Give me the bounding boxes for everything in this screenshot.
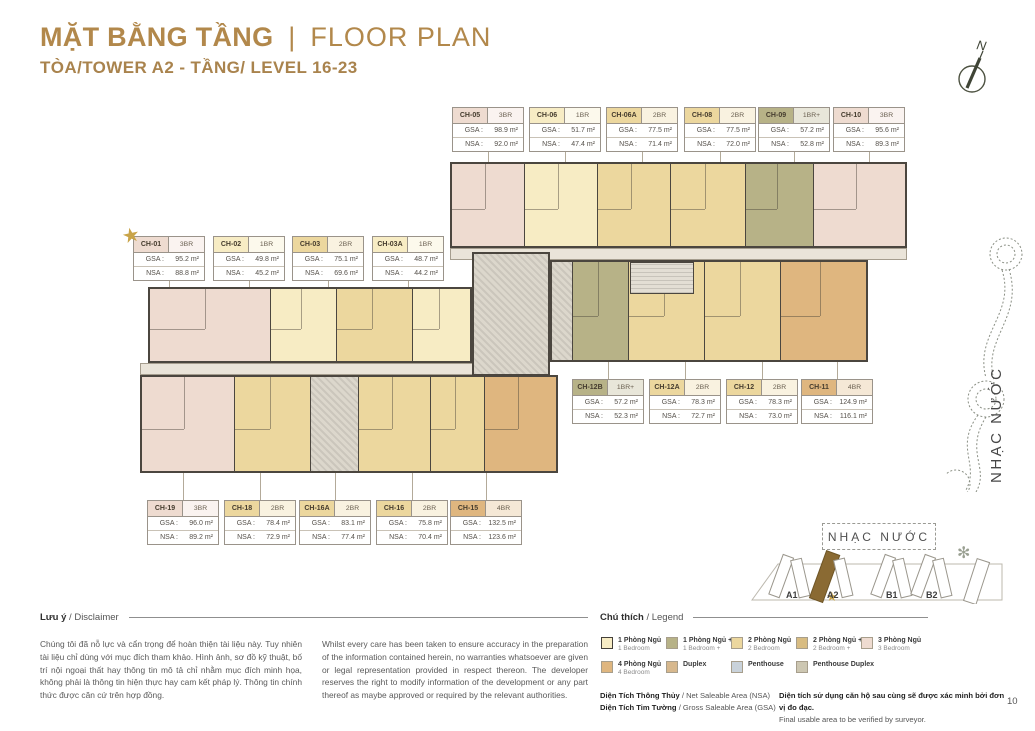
gsa-value: 57.2 m² (603, 399, 643, 406)
unit-nsa-row: NSA : 73.0 m² (727, 409, 797, 423)
unit-table-header: CH-03A 1BR (373, 237, 443, 253)
nsa-label: NSA : (225, 534, 255, 541)
unit-id: CH-06A (607, 108, 642, 123)
unit-nsa-row: NSA : 44.2 m² (373, 266, 443, 280)
unit-table-ch-09: CH-09 1BR+ GSA : 57.2 m² NSA : 52.8 m² (758, 107, 830, 152)
unit-type: 2BR (642, 108, 677, 123)
gsa-value: 48.7 m² (403, 256, 443, 263)
legend-swatch (731, 637, 743, 649)
page-title-vi: MẶT BẰNG TẦNG (40, 22, 273, 52)
unit-gsa-row: GSA : 77.5 m² (685, 124, 755, 137)
unit-id: CH-12A (650, 380, 685, 395)
legend-item-5: 3 Phòng Ngủ 3 Bedroom (861, 636, 921, 654)
legend-label-vi: 2 Phòng Ngủ + (813, 636, 862, 645)
unit-type: 2BR (328, 237, 363, 252)
nsa-value: 89.3 m² (864, 141, 904, 148)
gsa-value: 96.0 m² (178, 520, 218, 527)
legend-item-6: 4 Phòng Ngủ 4 Bedroom (601, 660, 666, 678)
brochure-page: MẶT BẰNG TẦNG | FLOOR PLAN TÒA/TOWER A2 … (0, 0, 1035, 731)
unit-id: CH-05 (453, 108, 488, 123)
unit-gsa-row: GSA : 98.9 m² (453, 124, 523, 137)
unit-id: CH-12B (573, 380, 608, 395)
unit-gsa-row: GSA : 132.5 m² (451, 517, 521, 530)
nsa-label: NSA : (607, 141, 637, 148)
legend-item-4: 2 Phòng Ngủ + 2 Bedroom + (796, 636, 861, 654)
nsa-value: 47.4 m² (560, 141, 600, 148)
unit-table-ch-06: CH-06 1BR GSA : 51.7 m² NSA : 47.4 m² (529, 107, 601, 152)
unit-table-ch-06a: CH-06A 2BR GSA : 77.5 m² NSA : 71.4 m² (606, 107, 678, 152)
unit-gsa-row: GSA : 95.2 m² (134, 253, 204, 266)
unit-block-ch-18 (234, 377, 310, 471)
heading-rule (693, 617, 928, 618)
nsa-value: 116.1 m² (832, 413, 872, 420)
page-title: MẶT BẰNG TẦNG | FLOOR PLAN (40, 22, 491, 53)
nsa-label: NSA : (685, 141, 715, 148)
stair-core-left (310, 377, 358, 471)
legend-item-1: 1 Phòng Ngủ 1 Bedroom (601, 636, 666, 654)
nsa-label: NSA : (300, 534, 330, 541)
leader-line (412, 473, 413, 500)
lobby-core (552, 262, 572, 360)
unit-table-header: CH-12 2BR (727, 380, 797, 396)
unit-block-ch-09 (745, 164, 813, 246)
legend-row-2: 4 Phòng Ngủ 4 Bedroom Duplex Penthouse P… (601, 660, 874, 678)
gsa-value: 77.5 m² (637, 127, 677, 134)
unit-block-ch-03 (336, 289, 412, 361)
unit-type: 4BR (837, 380, 872, 395)
unit-gsa-row: GSA : 75.1 m² (293, 253, 363, 266)
unit-table-header: CH-09 1BR+ (759, 108, 829, 124)
legend-item-9: Penthouse Duplex (796, 660, 874, 678)
legend-label-en: 1 Bedroom + (683, 645, 732, 653)
unit-type: 3BR (169, 237, 204, 252)
legend-label-vi: Duplex (683, 660, 706, 669)
unit-type: 2BR (412, 501, 447, 516)
unit-table-header: CH-03 2BR (293, 237, 363, 253)
unit-type: 1BR+ (794, 108, 829, 123)
compass-icon: N (945, 36, 1005, 102)
unit-type: 2BR (260, 501, 295, 516)
legend-swatch (731, 661, 743, 673)
tower-footprint-extra (964, 559, 990, 604)
unit-block-ch-06 (524, 164, 597, 246)
featured-star-icon: ★ (120, 224, 142, 247)
unit-id: CH-03 (293, 237, 328, 252)
gsa-label: GSA : (293, 256, 323, 263)
gsa-label: GSA : (225, 520, 255, 527)
legend-labels: 4 Phòng Ngủ 4 Bedroom (618, 660, 661, 678)
legend-labels: 1 Phòng Ngủ + 1 Bedroom + (683, 636, 732, 654)
legend-label-en: 2 Bedroom + (813, 645, 862, 653)
unit-table-ch-16: CH-16 2BR GSA : 75.8 m² NSA : 70.4 m² (376, 500, 448, 545)
gsa-label: GSA : (377, 520, 407, 527)
unit-id: CH-02 (214, 237, 249, 252)
unit-nsa-row: NSA : 92.0 m² (453, 137, 523, 151)
gsa-label: GSA : (685, 127, 715, 134)
legend-item-2: 1 Phòng Ngủ + 1 Bedroom + (666, 636, 731, 654)
unit-id: CH-11 (802, 380, 837, 395)
unit-block-ch-06a (597, 164, 670, 246)
unit-type: 3BR (869, 108, 904, 123)
unit-block-ch-16a (358, 377, 430, 471)
unit-nsa-row: NSA : 45.2 m² (214, 266, 284, 280)
unit-block-ch-10 (813, 164, 905, 246)
leader-line (335, 473, 336, 500)
nsa-value: 71.4 m² (637, 141, 677, 148)
gsa-value: 77.5 m² (715, 127, 755, 134)
legend-label-vi: 2 Phòng Ngủ (748, 636, 791, 645)
gsa-label: GSA : (834, 127, 864, 134)
unit-type: 1BR (565, 108, 600, 123)
unit-gsa-row: GSA : 48.7 m² (373, 253, 443, 266)
legend-swatch (601, 661, 613, 673)
wing-top (450, 162, 907, 248)
unit-block-ch-15 (484, 377, 556, 471)
unit-block-ch-16 (430, 377, 484, 471)
legend-item-8: Penthouse (731, 660, 796, 678)
unit-table-ch-05: CH-05 3BR GSA : 98.9 m² NSA : 92.0 m² (452, 107, 524, 152)
nsa-value: 69.6 m² (323, 270, 363, 277)
unit-table-ch-18: CH-18 2BR GSA : 78.4 m² NSA : 72.9 m² (224, 500, 296, 545)
unit-table-header: CH-11 4BR (802, 380, 872, 396)
page-title-en: FLOOR PLAN (310, 22, 491, 52)
unit-block-ch-05 (452, 164, 524, 246)
unit-block-ch-03a (412, 289, 470, 361)
legend-heading-en: / Legend (644, 612, 684, 623)
unit-id: CH-06 (530, 108, 565, 123)
unit-table-ch-12b: CH-12B 1BR+ GSA : 57.2 m² NSA : 52.3 m² (572, 379, 644, 424)
nsa-value: 77.4 m² (330, 534, 370, 541)
stair-core-right (630, 262, 694, 294)
unit-nsa-row: NSA : 123.6 m² (451, 530, 521, 544)
gsa-value: 49.8 m² (244, 256, 284, 263)
unit-id: CH-10 (834, 108, 869, 123)
nsa-label: NSA : (293, 270, 323, 277)
legend-label-en: 1 Bedroom (618, 645, 661, 653)
leader-line (486, 473, 487, 500)
tower-label-b2: B2 (926, 590, 938, 600)
legend-label-vi: 3 Phòng Ngủ (878, 636, 921, 645)
gsa-value: 95.6 m² (864, 127, 904, 134)
legend-swatch (861, 637, 873, 649)
unit-table-ch-12: CH-12 2BR GSA : 78.3 m² NSA : 73.0 m² (726, 379, 798, 424)
gsa-value: 75.1 m² (323, 256, 363, 263)
unit-table-ch-03: CH-03 2BR GSA : 75.1 m² NSA : 69.6 m² (292, 236, 364, 281)
unit-nsa-row: NSA : 88.8 m² (134, 266, 204, 280)
page-number: 10 (1007, 696, 1018, 707)
legend-heading-vi: Chú thích (600, 612, 644, 623)
unit-table-ch-10: CH-10 3BR GSA : 95.6 m² NSA : 89.3 m² (833, 107, 905, 152)
legend-label-vi: Penthouse (748, 660, 784, 669)
surveyor-note-en: Final usable area to be verified by surv… (779, 715, 926, 724)
unit-gsa-row: GSA : 77.5 m² (607, 124, 677, 137)
wing-right (550, 260, 868, 362)
legend-labels: Penthouse (748, 660, 784, 669)
unit-nsa-row: NSA : 116.1 m² (802, 409, 872, 423)
unit-gsa-row: GSA : 57.2 m² (573, 396, 643, 409)
leader-line (685, 362, 686, 379)
surveyor-note: Diện tích sử dụng căn hộ sau cùng sẽ đượ… (779, 690, 1009, 725)
unit-table-header: CH-06A 2BR (607, 108, 677, 124)
elevator-core (472, 252, 550, 376)
unit-table-header: CH-05 3BR (453, 108, 523, 124)
unit-gsa-row: GSA : 51.7 m² (530, 124, 600, 137)
legend-label-vi: 1 Phòng Ngủ + (683, 636, 732, 645)
unit-type: 1BR (408, 237, 443, 252)
gsa-value: 78.3 m² (680, 399, 720, 406)
nsa-value: 92.0 m² (483, 141, 523, 148)
unit-type: 4BR (486, 501, 521, 516)
legend-label-vi: Penthouse Duplex (813, 660, 874, 669)
unit-table-ch-12a: CH-12A 2BR GSA : 78.3 m² NSA : 72.7 m² (649, 379, 721, 424)
unit-type: 3BR (488, 108, 523, 123)
legend-label-en: 3 Bedroom (878, 645, 921, 653)
unit-block-ch-19 (142, 377, 234, 471)
unit-table-header: CH-02 1BR (214, 237, 284, 253)
leader-line (837, 362, 838, 379)
gsa-label: GSA : (727, 399, 757, 406)
nsa-value: 44.2 m² (403, 270, 443, 277)
unit-id: CH-03A (373, 237, 408, 252)
gsa-value: 57.2 m² (789, 127, 829, 134)
gsa-value: 51.7 m² (560, 127, 600, 134)
leader-line (608, 362, 609, 379)
nsa-value: 72.0 m² (715, 141, 755, 148)
disclaimer-heading: Lưu ý / Disclaimer (40, 612, 588, 623)
unit-nsa-row: NSA : 72.0 m² (685, 137, 755, 151)
nsa-label: NSA : (727, 413, 757, 420)
nsa-label: NSA : (759, 141, 789, 148)
nsa-value: 52.3 m² (603, 413, 643, 420)
gsa-value: 124.9 m² (832, 399, 872, 406)
gsa-value: 98.9 m² (483, 127, 523, 134)
nsa-value: 89.2 m² (178, 534, 218, 541)
unit-id: CH-16A (300, 501, 335, 516)
tower-label-a2: A2 (827, 590, 839, 600)
unit-gsa-row: GSA : 49.8 m² (214, 253, 284, 266)
area-definitions: Diện Tích Thông Thủy / Net Saleable Area… (600, 690, 776, 714)
unit-gsa-row: GSA : 96.0 m² (148, 517, 218, 530)
unit-nsa-row: NSA : 52.3 m² (573, 409, 643, 423)
legend-swatch (601, 637, 613, 649)
gsa-label: GSA : (453, 127, 483, 134)
nsa-definition: Diện Tích Thông Thủy / Net Saleable Area… (600, 690, 776, 702)
unit-gsa-row: GSA : 75.8 m² (377, 517, 447, 530)
gsa-value: 78.3 m² (757, 399, 797, 406)
legend-label-en: 4 Bedroom (618, 669, 661, 677)
unit-table-header: CH-12B 1BR+ (573, 380, 643, 396)
gsa-label: GSA : (802, 399, 832, 406)
legend-labels: Penthouse Duplex (813, 660, 874, 669)
unit-table-header: CH-16 2BR (377, 501, 447, 517)
nsa-value: 72.7 m² (680, 413, 720, 420)
gsa-label: GSA : (650, 399, 680, 406)
unit-gsa-row: GSA : 83.1 m² (300, 517, 370, 530)
unit-nsa-row: NSA : 47.4 m² (530, 137, 600, 151)
nsa-label: NSA : (214, 270, 244, 277)
leader-line (762, 362, 763, 379)
unit-table-ch-08: CH-08 2BR GSA : 77.5 m² NSA : 72.0 m² (684, 107, 756, 152)
legend-labels: 2 Phòng Ngủ 2 Bedroom (748, 636, 791, 654)
nsa-value: 72.9 m² (255, 534, 295, 541)
nsa-label: NSA : (451, 534, 481, 541)
unit-nsa-row: NSA : 72.9 m² (225, 530, 295, 544)
unit-table-ch-15: CH-15 4BR GSA : 132.5 m² NSA : 123.6 m² (450, 500, 522, 545)
nsa-label: NSA : (134, 270, 164, 277)
unit-id: CH-09 (759, 108, 794, 123)
gsa-value: 78.4 m² (255, 520, 295, 527)
unit-table-ch-19: CH-19 3BR GSA : 96.0 m² NSA : 89.2 m² (147, 500, 219, 545)
nsa-value: 73.0 m² (757, 413, 797, 420)
nsa-label: NSA : (573, 413, 603, 420)
legend-item-3: 2 Phòng Ngủ 2 Bedroom (731, 636, 796, 654)
nsa-value: 45.2 m² (244, 270, 284, 277)
disclaimer-heading-en: / Disclaimer (66, 612, 118, 623)
wing-left-lower (140, 375, 558, 473)
legend-item-7: Duplex (666, 660, 731, 678)
unit-table-ch-16a: CH-16A 2BR GSA : 83.1 m² NSA : 77.4 m² (299, 500, 371, 545)
tower-label-a1: A1 (786, 590, 798, 600)
unit-id: CH-15 (451, 501, 486, 516)
unit-table-header: CH-19 3BR (148, 501, 218, 517)
unit-table-header: CH-08 2BR (685, 108, 755, 124)
gsa-value: 95.2 m² (164, 256, 204, 263)
legend-label-vi: 4 Phòng Ngủ (618, 660, 661, 669)
unit-gsa-row: GSA : 57.2 m² (759, 124, 829, 137)
nsa-label: NSA : (373, 270, 403, 277)
unit-type: 2BR (685, 380, 720, 395)
wing-left-upper (148, 287, 472, 363)
gsa-label: GSA : (451, 520, 481, 527)
legend-swatch (796, 637, 808, 649)
unit-table-header: CH-10 3BR (834, 108, 904, 124)
gsa-label: GSA : (148, 520, 178, 527)
legend-label-vi: 1 Phòng Ngủ (618, 636, 661, 645)
legend-labels: 3 Phòng Ngủ 3 Bedroom (878, 636, 921, 654)
unit-type: 1BR (249, 237, 284, 252)
unit-nsa-row: NSA : 89.2 m² (148, 530, 218, 544)
gsa-label: GSA : (607, 127, 637, 134)
gsa-label: GSA : (530, 127, 560, 134)
disclaimer-text-en: Whilst every care has been taken to ensu… (322, 638, 588, 702)
legend-swatch (666, 661, 678, 673)
unit-block-ch-12 (704, 262, 780, 360)
unit-gsa-row: GSA : 124.9 m² (802, 396, 872, 409)
unit-nsa-row: NSA : 71.4 m² (607, 137, 677, 151)
unit-type: 2BR (335, 501, 370, 516)
unit-nsa-row: NSA : 69.6 m² (293, 266, 363, 280)
legend-heading: Chú thích / Legend (600, 612, 928, 623)
nsa-label: NSA : (834, 141, 864, 148)
legend-swatch (666, 637, 678, 649)
gsa-definition: Diện Tích Tim Tường / Gross Saleable Are… (600, 702, 776, 714)
disclaimer-text-vi: Chúng tôi đã nỗ lực và cẩn trọng để hoàn… (40, 638, 302, 702)
unit-gsa-row: GSA : 78.3 m² (650, 396, 720, 409)
side-water-label: NHẠC NƯỚC (988, 366, 1005, 483)
unit-table-header: CH-16A 2BR (300, 501, 370, 517)
unit-nsa-row: NSA : 77.4 m² (300, 530, 370, 544)
legend-labels: Duplex (683, 660, 706, 669)
unit-table-header: CH-06 1BR (530, 108, 600, 124)
disclaimer-heading-vi: Lưu ý (40, 612, 66, 623)
gsa-label: GSA : (759, 127, 789, 134)
unit-id: CH-08 (685, 108, 720, 123)
unit-nsa-row: NSA : 70.4 m² (377, 530, 447, 544)
unit-table-ch-03a: CH-03A 1BR GSA : 48.7 m² NSA : 44.2 m² (372, 236, 444, 281)
nsa-value: 52.8 m² (789, 141, 829, 148)
unit-table-ch-02: CH-02 1BR GSA : 49.8 m² NSA : 45.2 m² (213, 236, 285, 281)
gsa-label: GSA : (300, 520, 330, 527)
unit-nsa-row: NSA : 89.3 m² (834, 137, 904, 151)
unit-type: 2BR (762, 380, 797, 395)
unit-table-header: CH-15 4BR (451, 501, 521, 517)
nsa-label: NSA : (453, 141, 483, 148)
unit-gsa-row: GSA : 78.4 m² (225, 517, 295, 530)
legend-label-en: 2 Bedroom (748, 645, 791, 653)
nsa-value: 88.8 m² (164, 270, 204, 277)
unit-block-ch-08 (670, 164, 745, 246)
unit-block-ch-01 (150, 289, 270, 361)
surveyor-note-vi: Diện tích sử dụng căn hộ sau cùng sẽ đượ… (779, 691, 1004, 712)
heading-rule (129, 617, 588, 618)
nsa-label: NSA : (802, 413, 832, 420)
unit-type: 2BR (720, 108, 755, 123)
unit-block-ch-12b (572, 262, 628, 360)
nsa-value: 123.6 m² (481, 534, 521, 541)
unit-id: CH-12 (727, 380, 762, 395)
unit-type: 1BR+ (608, 380, 643, 395)
tower-label-b1: B1 (886, 590, 898, 600)
unit-type: 3BR (183, 501, 218, 516)
legend-labels: 1 Phòng Ngủ 1 Bedroom (618, 636, 661, 654)
unit-nsa-row: NSA : 52.8 m² (759, 137, 829, 151)
unit-table-header: CH-18 2BR (225, 501, 295, 517)
gsa-value: 83.1 m² (330, 520, 370, 527)
legend-row-1: 1 Phòng Ngủ 1 Bedroom 1 Phòng Ngủ + 1 Be… (601, 636, 921, 654)
gsa-label: GSA : (573, 399, 603, 406)
nsa-value: 70.4 m² (407, 534, 447, 541)
unit-gsa-row: GSA : 78.3 m² (727, 396, 797, 409)
unit-table-ch-11: CH-11 4BR GSA : 124.9 m² NSA : 116.1 m² (801, 379, 873, 424)
nsa-label: NSA : (530, 141, 560, 148)
unit-table-header: CH-01 3BR (134, 237, 204, 253)
gsa-value: 75.8 m² (407, 520, 447, 527)
page-subtitle: TÒA/TOWER A2 - TẦNG/ LEVEL 16-23 (40, 58, 358, 78)
nsa-label: NSA : (148, 534, 178, 541)
gsa-value: 132.5 m² (481, 520, 521, 527)
unit-id: CH-18 (225, 501, 260, 516)
nsa-label: NSA : (650, 413, 680, 420)
unit-table-header: CH-12A 2BR (650, 380, 720, 396)
gsa-label: GSA : (134, 256, 164, 263)
leader-line (183, 473, 184, 500)
gsa-label: GSA : (214, 256, 244, 263)
unit-block-ch-11 (780, 262, 866, 360)
title-divider: | (288, 22, 295, 52)
unit-id: CH-19 (148, 501, 183, 516)
legend-swatch (796, 661, 808, 673)
compass-north-letter: N (975, 37, 987, 54)
unit-id: CH-16 (377, 501, 412, 516)
unit-block-ch-02 (270, 289, 336, 361)
unit-gsa-row: GSA : 95.6 m² (834, 124, 904, 137)
legend-labels: 2 Phòng Ngủ + 2 Bedroom + (813, 636, 862, 654)
gsa-label: GSA : (373, 256, 403, 263)
unit-table-ch-01: CH-01 3BR GSA : 95.2 m² NSA : 88.8 m² (133, 236, 205, 281)
nsa-label: NSA : (377, 534, 407, 541)
unit-nsa-row: NSA : 72.7 m² (650, 409, 720, 423)
leader-line (260, 473, 261, 500)
